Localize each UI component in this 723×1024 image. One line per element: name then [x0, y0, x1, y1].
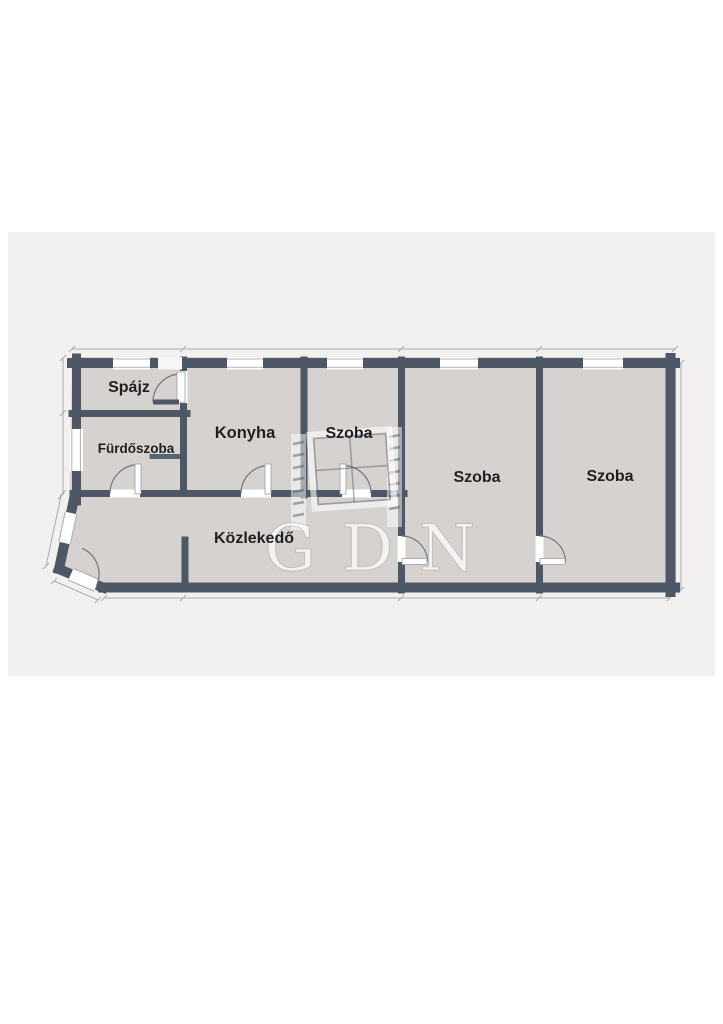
window-top-2 [227, 357, 263, 370]
window-top-3 [327, 357, 363, 370]
top-wall-opening [158, 357, 182, 370]
room-label-szoba-1: Szoba [325, 425, 372, 442]
room-label-spajz: Spájz [108, 379, 150, 396]
room-label-konyha: Konyha [215, 424, 276, 442]
room-label-szoba-2: Szoba [453, 469, 500, 486]
window-top-5 [583, 357, 623, 370]
floor-plan: GDN Spájz Fürdőszoba Konyha Szoba Szoba … [0, 0, 723, 1024]
room-label-furdoszoba: Fürdőszoba [98, 441, 175, 456]
window-left [70, 429, 83, 471]
room-label-szoba-3: Szoba [586, 468, 633, 485]
window-top-4 [440, 357, 478, 370]
room-label-kozlekedo: Közlekedő [214, 530, 294, 547]
window-diagonal [65, 513, 71, 543]
watermark-text: GDN [265, 512, 501, 586]
window-top-1 [113, 357, 150, 370]
